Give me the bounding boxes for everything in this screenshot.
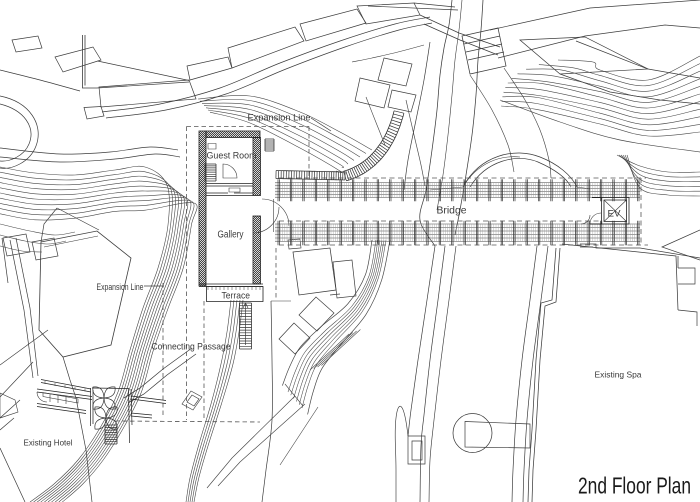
svg-text:Terrace: Terrace [222, 291, 251, 302]
svg-text:Gallery: Gallery [218, 230, 244, 241]
svg-text:Bridge: Bridge [437, 206, 467, 217]
svg-text:Expansion Line: Expansion Line [97, 282, 144, 293]
svg-text:EV: EV [608, 209, 621, 219]
svg-text:Expansion Line: Expansion Line [248, 113, 311, 124]
svg-text:Existing Hotel: Existing Hotel [24, 438, 73, 448]
svg-text:Guest Room: Guest Room [207, 150, 257, 161]
svg-text:2nd Floor Plan: 2nd Floor Plan [578, 473, 691, 499]
svg-text:Existing Spa: Existing Spa [595, 370, 642, 380]
svg-text:Connecting Passage: Connecting Passage [152, 342, 231, 353]
